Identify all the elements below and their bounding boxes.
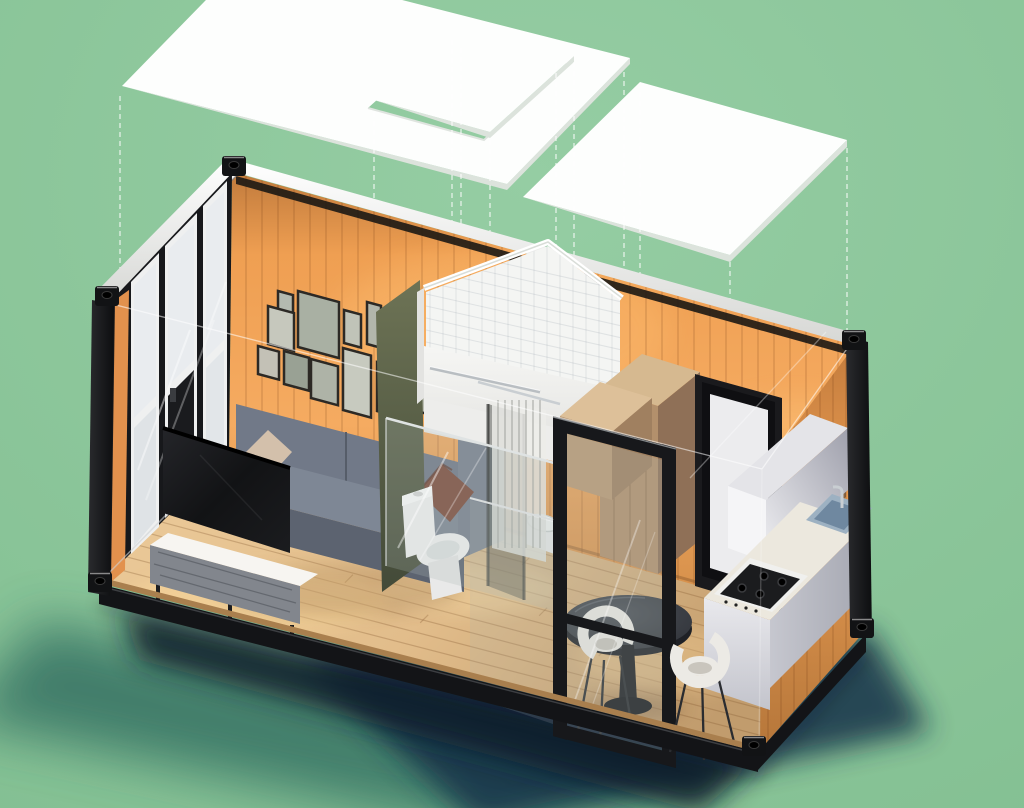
corner-casting [88,572,112,592]
chair-seat-shadow [688,662,712,674]
window-glass-b [168,224,194,386]
casting-hole [229,162,239,169]
casting-hole [849,336,859,343]
casting-hole [857,624,867,631]
window-glass-a-upper [134,263,156,418]
corner-casting [850,618,874,638]
picture-frame [298,291,339,358]
picture-frame [258,346,279,380]
container-home-scene [0,0,1024,808]
picture-frame [284,351,309,391]
corner-post-right [846,336,872,638]
casting-hole [95,578,105,585]
corner-casting [222,156,246,176]
casting-hole [102,292,112,299]
door-left-stile [553,416,567,740]
casting-hole [749,742,759,749]
corner-casting [95,286,119,306]
corner-casting [742,736,766,756]
picture-frame [343,348,371,418]
door-handle [170,388,176,402]
picture-frame [344,310,361,348]
picture-frame [311,359,338,405]
door-right-stile [662,444,676,768]
shower-left-face [417,288,424,404]
render-canvas [0,0,1024,808]
corner-post-left [88,300,114,596]
corner-casting [842,330,866,350]
